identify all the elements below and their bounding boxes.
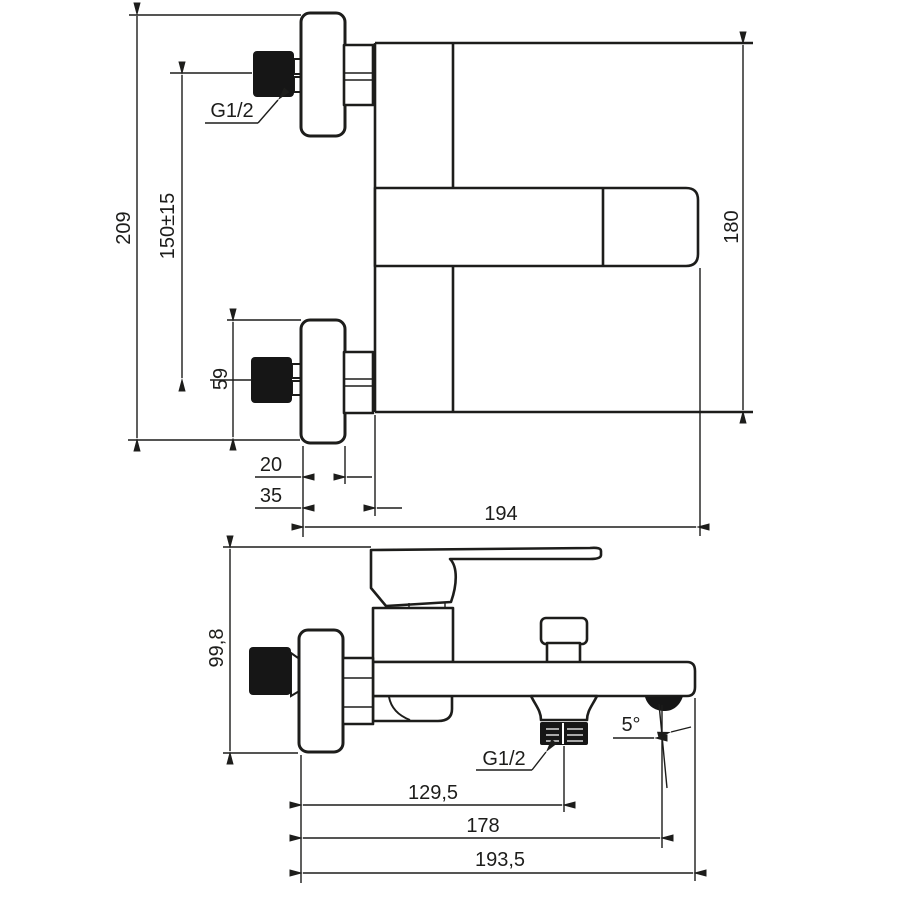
hex-nut-plan — [343, 658, 373, 724]
dim-label-1295: 129,5 — [408, 782, 458, 804]
angle-ref-line — [659, 704, 667, 788]
wall-flange-top — [301, 13, 345, 136]
dim-label-209: 209 — [113, 211, 135, 244]
hex-nut-bottom — [344, 352, 373, 413]
dim-label-178: 178 — [466, 815, 499, 837]
dim-line-5deg-right — [671, 727, 691, 732]
dim-label-1935: 193,5 — [475, 849, 525, 871]
spout-body — [373, 662, 695, 696]
technical-drawing-page: 209 150±15 59 180 20 35 194 G1/2 — [0, 0, 900, 900]
dim-label-59: 59 — [210, 368, 232, 390]
leader-arrow-g12-plan — [532, 752, 546, 770]
dim-label-20: 20 — [260, 454, 282, 476]
spout-arm — [375, 188, 698, 266]
dim-label-194: 194 — [484, 503, 517, 525]
dim-label-5deg: 5° — [621, 714, 640, 736]
hex-nut-top — [344, 45, 373, 105]
dim-label-998: 99,8 — [206, 629, 228, 668]
handle-lever — [371, 548, 601, 606]
dim-label-35: 35 — [260, 485, 282, 507]
front-view — [251, 13, 753, 443]
dim-label-150: 150±15 — [157, 193, 179, 260]
thread-label-g12-plan: G1/2 — [482, 748, 525, 770]
cartridge-housing — [373, 608, 453, 662]
dim-label-180: 180 — [721, 210, 743, 243]
wall-flange-bottom — [301, 320, 345, 443]
mixer-dimension-drawing: 209 150±15 59 180 20 35 194 G1/2 — [0, 0, 900, 900]
body-underside-block — [373, 696, 452, 721]
wall-flange-plan — [299, 630, 343, 752]
leader-arrow-g12-front — [258, 100, 278, 123]
shower-port-cap — [541, 618, 587, 644]
front-view-dimensions: 209 150±15 59 180 20 35 194 G1/2 — [113, 15, 743, 537]
shower-port-neck — [547, 643, 580, 663]
inlet-connector-plan — [249, 647, 291, 695]
thread-label-g12-front: G1/2 — [210, 100, 253, 122]
inlet-connector-top — [253, 51, 294, 97]
aerator — [645, 696, 683, 711]
tub-outlet-funnel — [531, 696, 597, 720]
inlet-connector-bottom — [251, 357, 292, 403]
